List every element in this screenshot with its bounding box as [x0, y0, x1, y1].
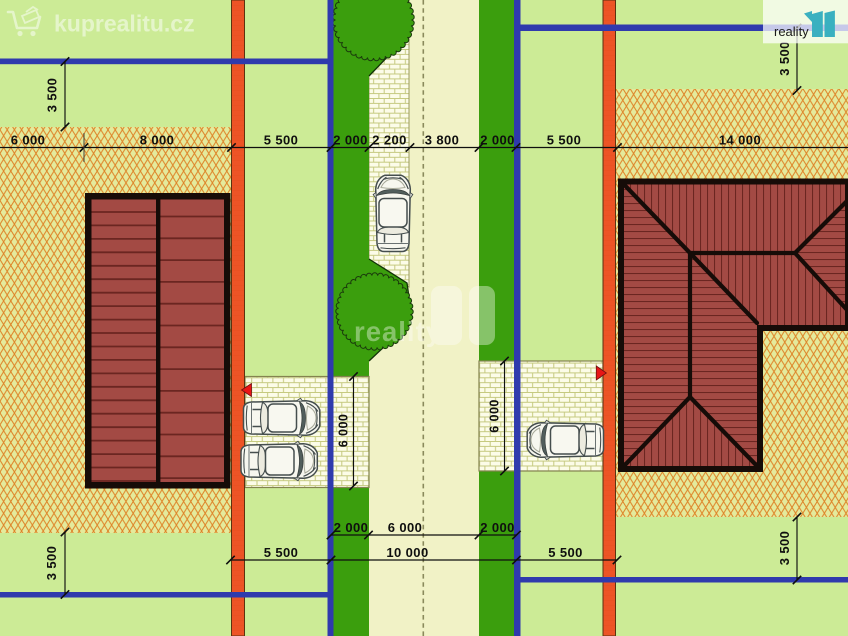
svg-text:5 500: 5 500 — [264, 545, 299, 560]
svg-text:2 000: 2 000 — [333, 133, 368, 148]
svg-text:5 500: 5 500 — [264, 133, 299, 148]
svg-text:2 000: 2 000 — [480, 520, 515, 535]
svg-text:6 000: 6 000 — [337, 414, 351, 448]
svg-text:6 000: 6 000 — [388, 520, 423, 535]
svg-text:reality: reality — [354, 316, 442, 347]
svg-text:3 500: 3 500 — [777, 531, 792, 566]
svg-text:2 000: 2 000 — [334, 520, 369, 535]
svg-text:reality: reality — [774, 24, 809, 39]
svg-text:10 000: 10 000 — [386, 545, 428, 560]
svg-text:2 000: 2 000 — [480, 133, 515, 148]
svg-text:8 000: 8 000 — [140, 133, 175, 148]
svg-text:6 000: 6 000 — [488, 399, 502, 433]
svg-text:kuprealitu.cz: kuprealitu.cz — [54, 11, 195, 37]
svg-text:6 000: 6 000 — [11, 133, 46, 148]
svg-text:3 800: 3 800 — [425, 133, 460, 148]
svg-text:3 500: 3 500 — [45, 78, 60, 113]
svg-text:2 200: 2 200 — [372, 133, 407, 148]
svg-text:14 000: 14 000 — [719, 133, 761, 148]
svg-text:5 500: 5 500 — [548, 545, 583, 560]
svg-text:3 500: 3 500 — [44, 546, 59, 581]
svg-text:3 500: 3 500 — [777, 41, 792, 76]
svg-text:5 500: 5 500 — [547, 133, 582, 148]
